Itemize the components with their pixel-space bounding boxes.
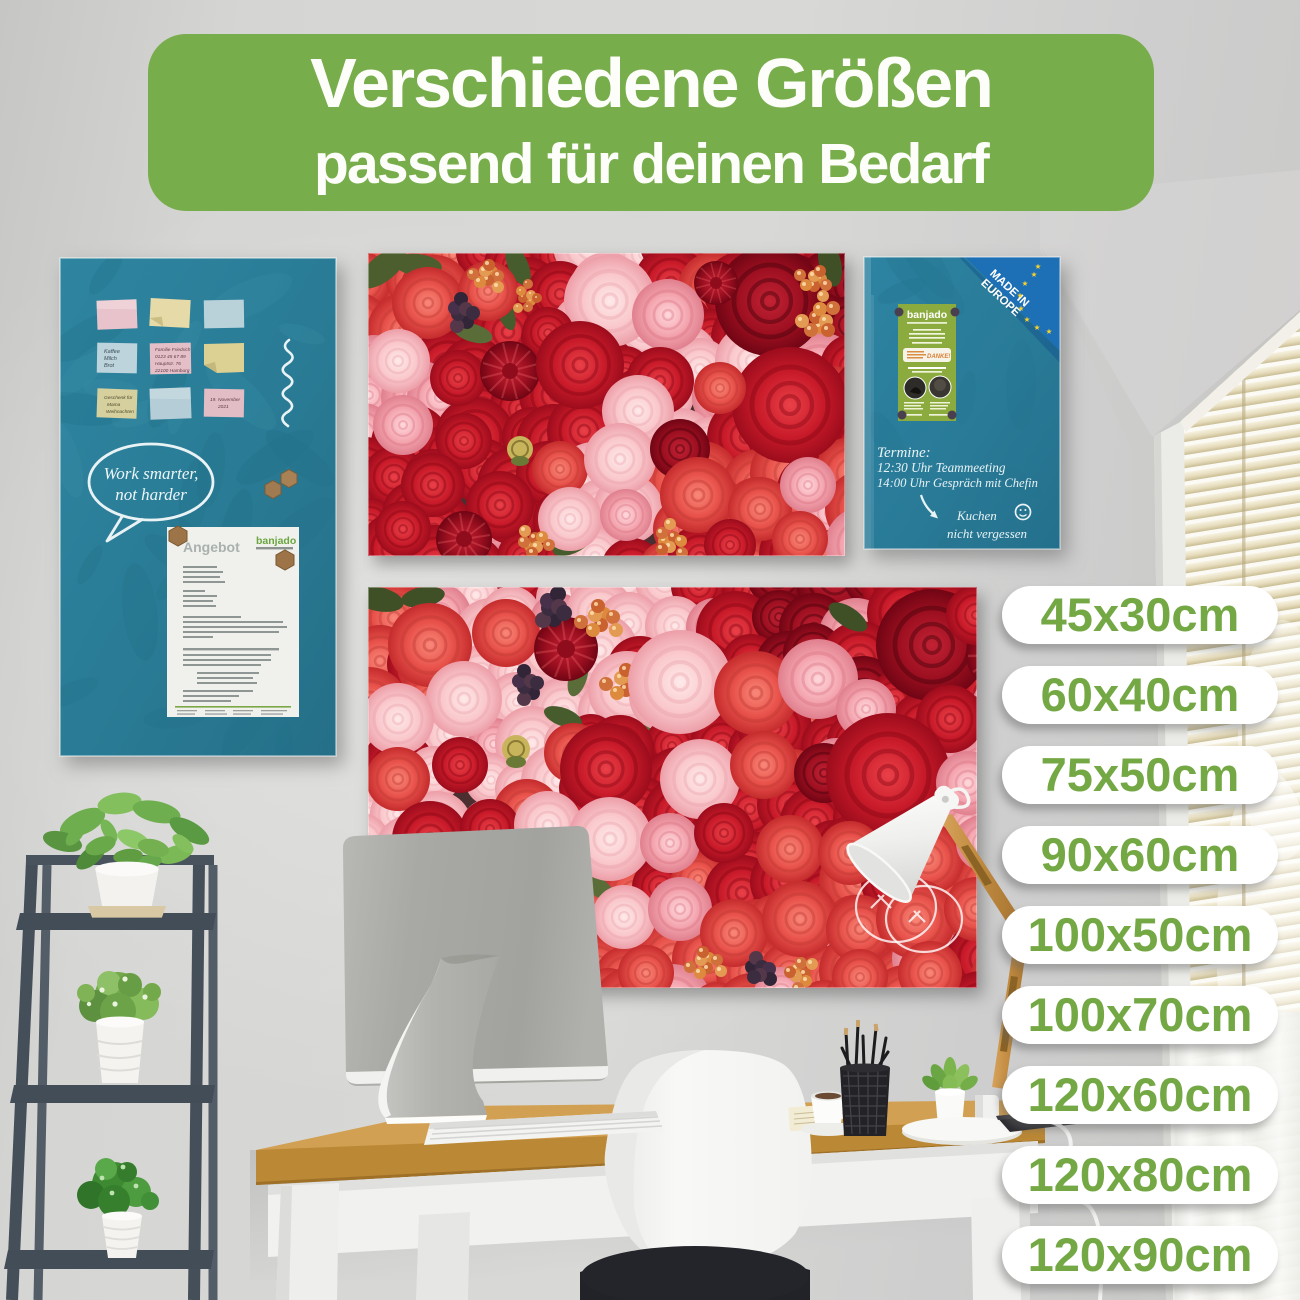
svg-text:12:30 Uhr Teammeeting: 12:30 Uhr Teammeeting [877,460,1006,475]
svg-text:0123 45 67 89: 0123 45 67 89 [155,354,186,360]
svg-text:Kaffee: Kaffee [104,349,120,355]
svg-text:not harder: not harder [115,485,187,504]
svg-text:DANKE!: DANKE! [927,354,950,360]
svg-text:★: ★ [1018,304,1025,313]
svg-text:★: ★ [1024,315,1031,324]
svg-text:22100 Hamburg: 22100 Hamburg [154,368,190,374]
svg-text:Familie Friedrich: Familie Friedrich [155,347,191,353]
svg-text:Kuchen: Kuchen [956,508,997,523]
svg-text:14:00 Uhr Gespräch mit Chefin: 14:00 Uhr Gespräch mit Chefin [877,476,1038,490]
svg-text:★: ★ [1046,327,1053,336]
svg-text:Mama: Mama [107,402,121,408]
svg-text:Geschenk für: Geschenk für [104,395,133,401]
svg-text:Angebot: Angebot [183,539,240,555]
svg-text:★: ★ [1031,270,1038,279]
svg-text:2021: 2021 [217,404,229,410]
svg-text:Brot: Brot [104,363,115,369]
svg-text:★: ★ [1034,323,1041,332]
svg-text:Hauptstr. 76: Hauptstr. 76 [155,361,181,367]
svg-text:banjado: banjado [256,535,296,547]
svg-text:banjado: banjado [907,309,947,321]
svg-text:Work smarter,: Work smarter, [104,464,199,483]
svg-text:Termine:: Termine: [877,445,931,461]
svg-text:19. November: 19. November [210,397,241,403]
svg-text:★: ★ [1022,279,1029,288]
svg-text:★: ★ [1035,262,1042,271]
svg-text:nicht vergessen: nicht vergessen [947,526,1027,541]
svg-text:★: ★ [1017,291,1024,300]
svg-text:Milch: Milch [104,356,117,362]
svg-text:Weihnachten: Weihnachten [106,409,134,415]
